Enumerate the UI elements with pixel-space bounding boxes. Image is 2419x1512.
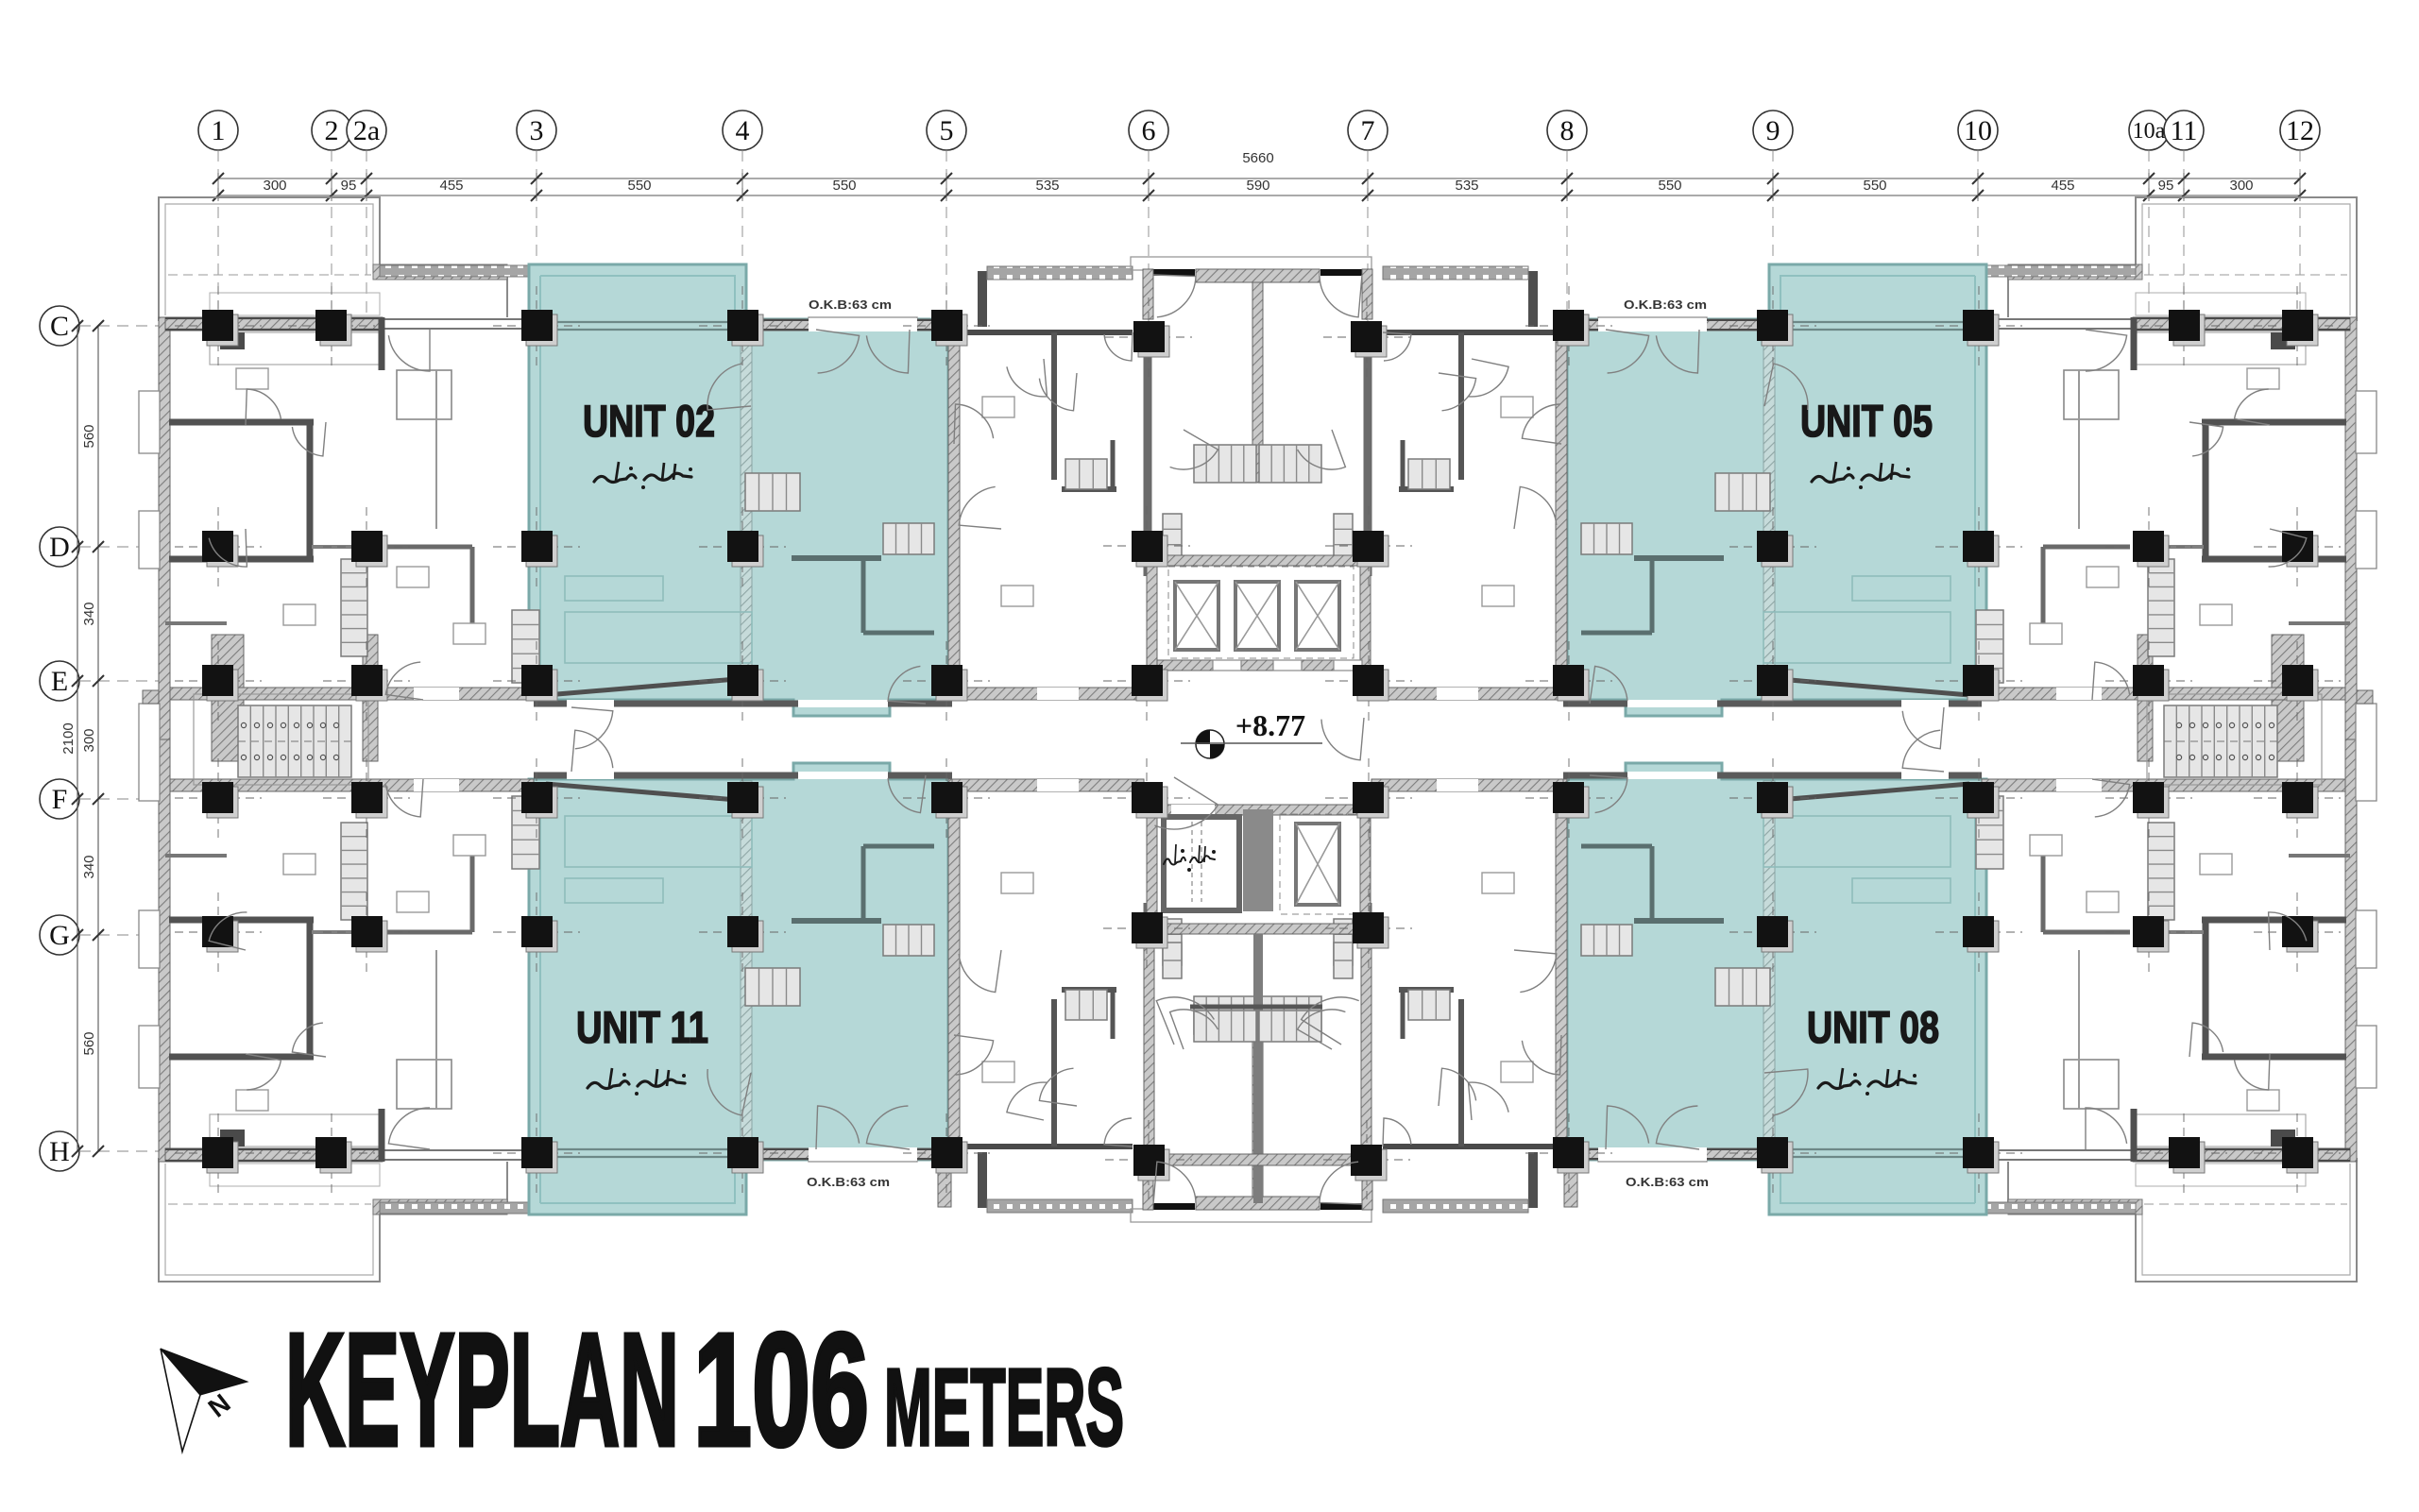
- svg-text:O.K.B:63 cm: O.K.B:63 cm: [1624, 297, 1707, 312]
- svg-text:11: 11: [2171, 115, 2198, 146]
- svg-text:O.K.B:63 cm: O.K.B:63 cm: [1626, 1175, 1709, 1189]
- svg-text:10: 10: [1964, 115, 1992, 146]
- svg-text:550: 550: [1863, 178, 1886, 194]
- svg-text:8: 8: [1560, 115, 1575, 146]
- svg-text:1: 1: [212, 115, 226, 146]
- svg-text:455: 455: [2051, 178, 2074, 194]
- svg-text:F: F: [52, 784, 68, 815]
- svg-text:2100: 2100: [60, 722, 77, 754]
- svg-text:7: 7: [1361, 115, 1375, 146]
- svg-text:E: E: [51, 666, 68, 697]
- svg-text:95: 95: [341, 178, 357, 194]
- svg-text:O.K.B:63 cm: O.K.B:63 cm: [807, 1175, 890, 1189]
- svg-text:300: 300: [263, 178, 286, 194]
- svg-text:12: 12: [2286, 115, 2314, 146]
- svg-text:5660: 5660: [1242, 150, 1273, 166]
- svg-text:UNIT 08: UNIT 08: [1807, 1002, 1939, 1052]
- svg-text:340: 340: [81, 855, 97, 878]
- svg-text:560: 560: [81, 1031, 97, 1055]
- svg-text:535: 535: [1035, 178, 1059, 194]
- svg-text:2a: 2a: [353, 115, 380, 146]
- svg-text:3: 3: [530, 115, 544, 146]
- svg-text:560: 560: [81, 424, 97, 448]
- svg-text:550: 550: [627, 178, 651, 194]
- svg-text:300: 300: [81, 728, 97, 752]
- svg-text:10a: 10a: [2133, 119, 2166, 144]
- svg-text:550: 550: [832, 178, 856, 194]
- svg-text:H: H: [49, 1136, 70, 1167]
- svg-text:G: G: [49, 920, 70, 951]
- svg-text:455: 455: [439, 178, 463, 194]
- svg-text:106: 106: [693, 1300, 869, 1480]
- svg-text:340: 340: [81, 602, 97, 625]
- svg-text:UNIT 02: UNIT 02: [583, 396, 715, 446]
- svg-text:O.K.B:63 cm: O.K.B:63 cm: [809, 297, 892, 312]
- svg-text:300: 300: [2229, 178, 2253, 194]
- svg-text:535: 535: [1455, 178, 1478, 194]
- svg-text:UNIT 11: UNIT 11: [576, 1002, 708, 1052]
- svg-text:+8.77: +8.77: [1235, 708, 1305, 742]
- svg-text:UNIT 05: UNIT 05: [1800, 396, 1933, 446]
- svg-text:4: 4: [736, 115, 750, 146]
- svg-text:9: 9: [1766, 115, 1780, 146]
- svg-text:95: 95: [2158, 178, 2174, 194]
- svg-text:D: D: [49, 532, 70, 563]
- svg-text:550: 550: [1658, 178, 1681, 194]
- svg-text:6: 6: [1142, 115, 1156, 146]
- svg-text:C: C: [50, 311, 69, 342]
- svg-text:5: 5: [940, 115, 954, 146]
- svg-text:METERS: METERS: [884, 1346, 1124, 1469]
- svg-text:2: 2: [325, 115, 339, 146]
- svg-text:KEYPLAN: KEYPLAN: [285, 1300, 679, 1480]
- svg-text:590: 590: [1246, 178, 1269, 194]
